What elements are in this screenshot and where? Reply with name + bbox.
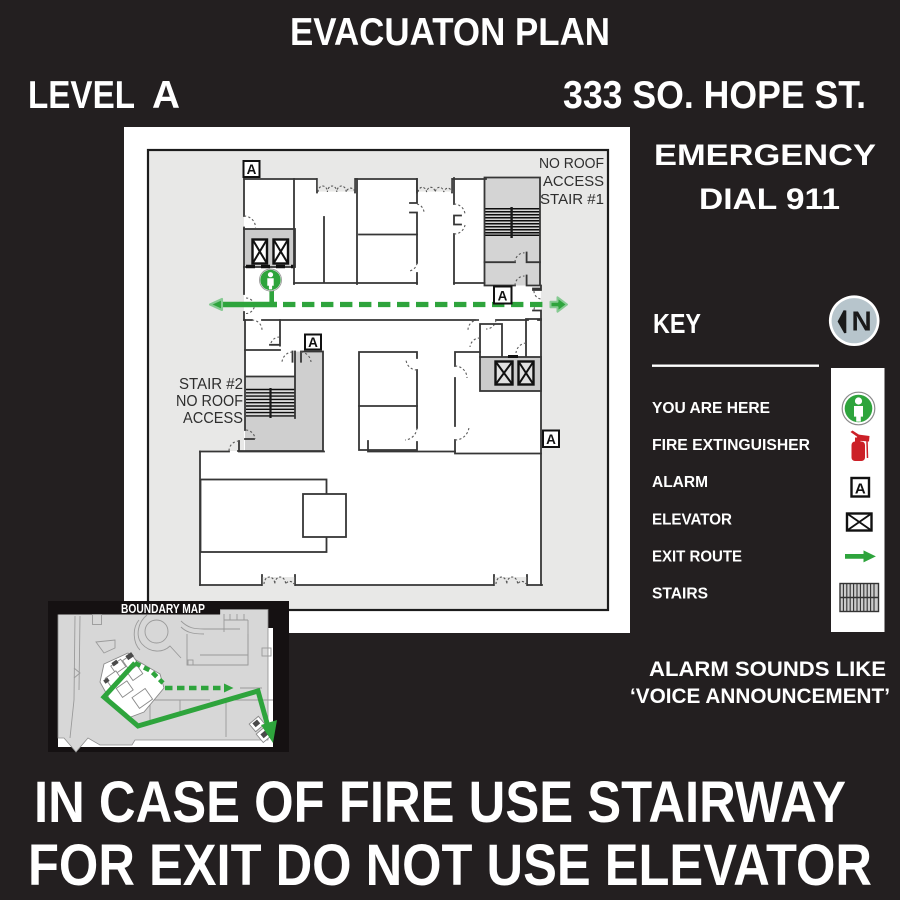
svg-text:A: A <box>546 432 556 447</box>
svg-text:‘VOICE ANNOUNCEMENT’: ‘VOICE ANNOUNCEMENT’ <box>630 685 890 708</box>
svg-text:STAIR #2: STAIR #2 <box>179 376 243 393</box>
svg-text:ALARM: ALARM <box>652 474 708 491</box>
svg-text:FIRE EXTINGUISHER: FIRE EXTINGUISHER <box>652 437 810 454</box>
svg-text:STAIR #1: STAIR #1 <box>540 191 604 208</box>
svg-text:NO ROOF: NO ROOF <box>539 155 604 172</box>
svg-text:KEY: KEY <box>653 308 701 339</box>
svg-text:FOR EXIT DO NOT USE ELEVATOR: FOR EXIT DO NOT USE ELEVATOR <box>28 833 872 898</box>
svg-text:EXIT ROUTE: EXIT ROUTE <box>652 549 742 566</box>
svg-text:A: A <box>855 481 866 498</box>
svg-text:333 SO. HOPE ST.: 333 SO. HOPE ST. <box>563 74 866 117</box>
svg-text:IN CASE OF FIRE USE STAIRWAY: IN CASE OF FIRE USE STAIRWAY <box>34 770 846 835</box>
svg-text:ALARM SOUNDS LIKE: ALARM SOUNDS LIKE <box>649 658 886 681</box>
svg-text:EMERGENCY: EMERGENCY <box>654 139 876 172</box>
svg-text:DIAL 911: DIAL 911 <box>699 183 840 216</box>
svg-text:ACCESS: ACCESS <box>183 410 243 427</box>
svg-text:STAIRS: STAIRS <box>652 586 708 603</box>
svg-text:YOU ARE HERE: YOU ARE HERE <box>652 400 770 417</box>
svg-text:N: N <box>852 306 872 337</box>
svg-text:LEVEL: LEVEL <box>28 74 135 117</box>
svg-text:ELEVATOR: ELEVATOR <box>652 512 732 529</box>
svg-text:ACCESS: ACCESS <box>543 173 604 190</box>
svg-text:BOUNDARY MAP: BOUNDARY MAP <box>121 601 205 616</box>
svg-text:A: A <box>247 162 257 177</box>
svg-text:NO ROOF: NO ROOF <box>176 393 243 410</box>
svg-text:EVACUATON PLAN: EVACUATON PLAN <box>290 11 610 54</box>
svg-text:A: A <box>498 289 508 304</box>
svg-text:A: A <box>152 74 180 117</box>
svg-text:A: A <box>308 335 318 350</box>
